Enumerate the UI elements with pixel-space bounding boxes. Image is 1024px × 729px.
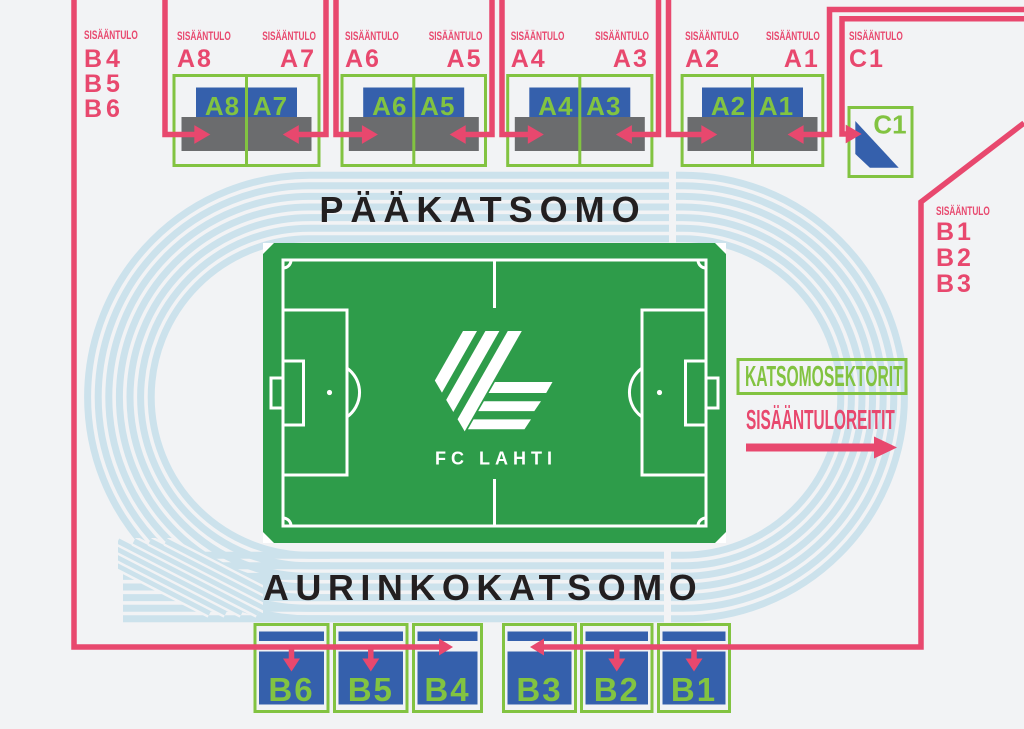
svg-text:SISÄÄNTULO: SISÄÄNTULO bbox=[936, 204, 990, 219]
svg-text:B6: B6 bbox=[268, 671, 314, 708]
svg-text:FC LAHTI: FC LAHTI bbox=[435, 449, 557, 469]
svg-text:B5: B5 bbox=[348, 671, 394, 708]
svg-text:SISÄÄNTULO: SISÄÄNTULO bbox=[429, 29, 483, 44]
svg-text:A8: A8 bbox=[205, 91, 240, 121]
svg-text:A6: A6 bbox=[345, 45, 381, 73]
svg-text:A5: A5 bbox=[447, 45, 483, 73]
svg-text:SISÄÄNTULO: SISÄÄNTULO bbox=[766, 29, 820, 44]
svg-text:A3: A3 bbox=[586, 91, 621, 121]
svg-text:A4: A4 bbox=[511, 45, 547, 73]
svg-text:SISÄÄNTULO: SISÄÄNTULO bbox=[345, 29, 399, 44]
svg-text:SISÄÄNTULO: SISÄÄNTULO bbox=[177, 29, 231, 44]
svg-text:A6: A6 bbox=[372, 91, 407, 121]
svg-text:AURINKOKATSOMO: AURINKOKATSOMO bbox=[263, 567, 703, 608]
svg-text:SISÄÄNTULO: SISÄÄNTULO bbox=[84, 28, 138, 43]
svg-text:B2: B2 bbox=[594, 671, 640, 708]
svg-text:A3: A3 bbox=[613, 45, 649, 73]
svg-text:SISÄÄNTULO: SISÄÄNTULO bbox=[849, 29, 903, 44]
svg-text:A2: A2 bbox=[711, 91, 746, 121]
svg-text:B3: B3 bbox=[516, 671, 562, 708]
svg-text:A1: A1 bbox=[759, 91, 794, 121]
svg-text:PÄÄKATSOMO: PÄÄKATSOMO bbox=[319, 189, 646, 230]
svg-text:B4: B4 bbox=[424, 671, 470, 708]
svg-text:A5: A5 bbox=[420, 91, 455, 121]
svg-text:KATSOMOSEKTORIT: KATSOMOSEKTORIT bbox=[745, 360, 903, 392]
svg-text:B6: B6 bbox=[84, 95, 124, 123]
svg-text:SISÄÄNTULO: SISÄÄNTULO bbox=[685, 29, 739, 44]
svg-text:A7: A7 bbox=[280, 45, 316, 73]
svg-text:A7: A7 bbox=[253, 91, 288, 121]
svg-text:SISÄÄNTULO: SISÄÄNTULO bbox=[511, 29, 565, 44]
svg-text:B2: B2 bbox=[936, 244, 974, 272]
svg-text:A4: A4 bbox=[538, 91, 573, 121]
svg-text:B3: B3 bbox=[936, 270, 974, 298]
svg-text:B1: B1 bbox=[936, 218, 974, 246]
svg-text:C1: C1 bbox=[873, 110, 906, 140]
svg-text:B5: B5 bbox=[84, 70, 124, 98]
svg-text:SISÄÄNTULOREITIT: SISÄÄNTULOREITIT bbox=[746, 404, 895, 435]
svg-text:B4: B4 bbox=[84, 45, 124, 73]
svg-text:A2: A2 bbox=[685, 45, 721, 73]
svg-text:C1: C1 bbox=[849, 45, 885, 73]
svg-text:SISÄÄNTULO: SISÄÄNTULO bbox=[262, 29, 316, 44]
svg-text:A8: A8 bbox=[177, 45, 213, 73]
svg-text:SISÄÄNTULO: SISÄÄNTULO bbox=[595, 29, 649, 44]
svg-text:A1: A1 bbox=[784, 45, 820, 73]
svg-text:B1: B1 bbox=[671, 671, 717, 708]
